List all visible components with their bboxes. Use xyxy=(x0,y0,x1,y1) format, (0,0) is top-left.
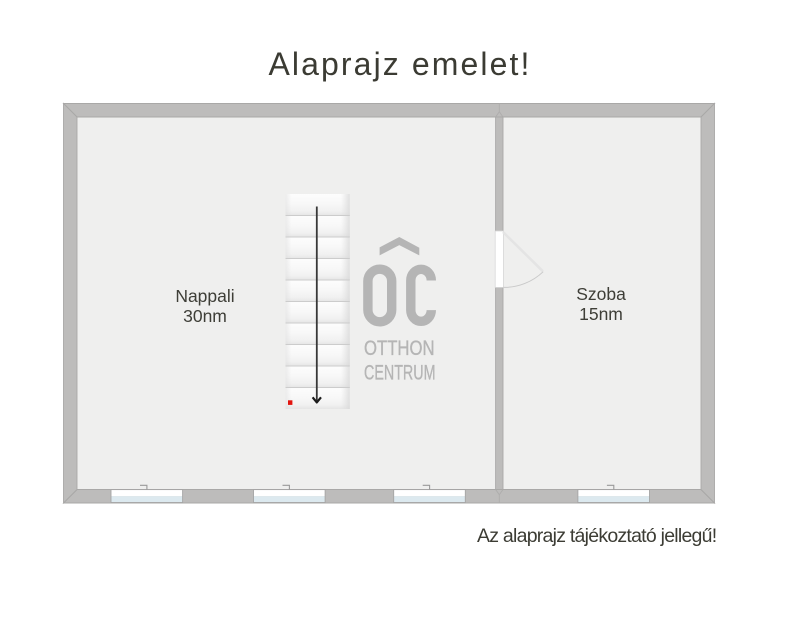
svg-text:OTTHON: OTTHON xyxy=(364,337,435,360)
svg-text:CENTRUM: CENTRUM xyxy=(364,362,436,385)
